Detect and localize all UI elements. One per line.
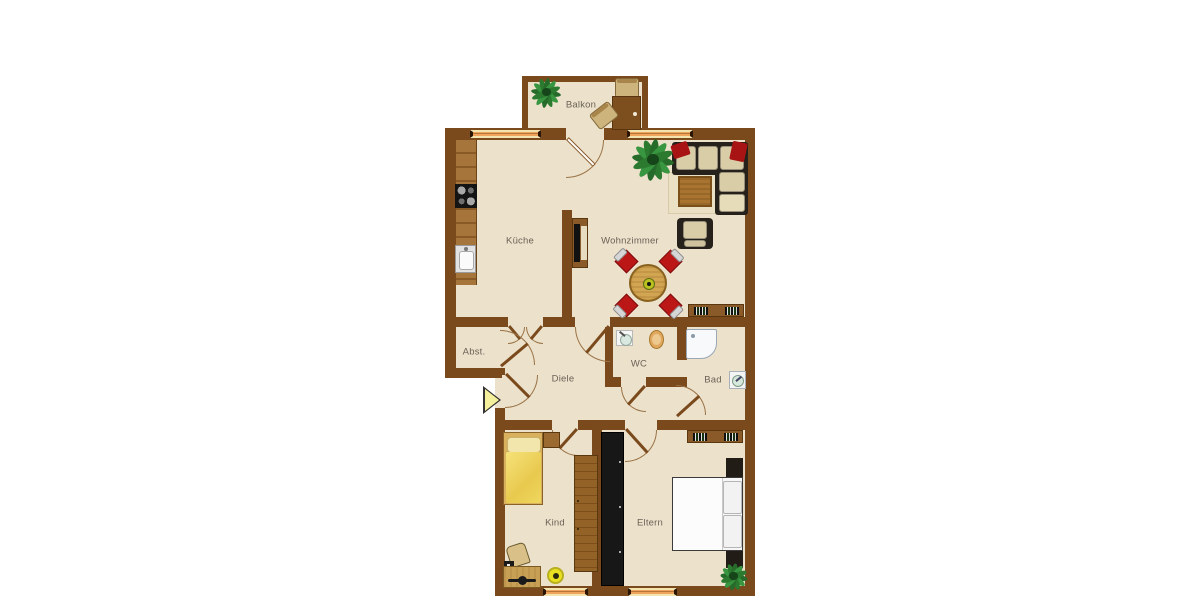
- plant: [720, 564, 747, 589]
- wall-segment: [445, 317, 508, 327]
- wall-segment: [657, 420, 755, 430]
- kind-blanket: [506, 452, 541, 503]
- room-label-balkon: Balkon: [566, 100, 596, 111]
- wall-segment: [445, 368, 502, 378]
- tv-lowboard: [572, 218, 588, 268]
- double-bed: [672, 477, 743, 551]
- eltern-wardrobe: [601, 432, 624, 586]
- table-centerpiece: [643, 278, 655, 290]
- kind-wardrobe: [574, 455, 598, 572]
- washing-machine: [729, 371, 746, 389]
- kind-bed: [503, 432, 543, 505]
- wall-segment: [495, 420, 552, 430]
- hand-basin: [616, 330, 633, 346]
- room-label-kind: Kind: [545, 518, 565, 529]
- toilet: [649, 330, 664, 349]
- wall-segment: [642, 76, 648, 133]
- sink-faucet: [464, 247, 468, 251]
- floorplan: Balkon Küche Wohnzimmer Abst. Diele WC B…: [0, 0, 1200, 600]
- wall-segment: [495, 368, 505, 375]
- desk-chair: [508, 573, 536, 589]
- room-label-wc: WC: [631, 359, 647, 370]
- wall-segment: [578, 420, 625, 430]
- balcony-chair: [615, 78, 639, 98]
- duvet: [673, 478, 723, 550]
- dining-table: [629, 264, 667, 302]
- bed-pillow: [723, 481, 742, 514]
- stool: [547, 567, 564, 584]
- nightstand: [543, 432, 560, 448]
- bed-pillow: [723, 515, 742, 548]
- wall-segment: [610, 317, 755, 327]
- window: [470, 130, 541, 138]
- room-label-eltern: Eltern: [637, 518, 663, 529]
- plant: [531, 79, 561, 106]
- window: [627, 130, 693, 138]
- room-label-abst: Abst.: [463, 347, 486, 358]
- sink-basin: [459, 251, 474, 270]
- tv-panel: [581, 226, 587, 260]
- kind-pillow: [507, 437, 541, 453]
- room-label-wohnzimmer: Wohnzimmer: [601, 236, 659, 247]
- wall-segment: [522, 76, 528, 133]
- coffee-table: [678, 176, 712, 207]
- window: [628, 588, 677, 596]
- plant: [632, 141, 674, 179]
- armchair: [677, 218, 713, 249]
- kitchen-sink: [455, 245, 476, 273]
- room-label-diele: Diele: [552, 374, 575, 385]
- room-label-bad: Bad: [704, 375, 722, 386]
- sideboard-books: [688, 304, 744, 317]
- tv-screen: [574, 224, 580, 262]
- wall-segment: [562, 210, 572, 327]
- wall-segment: [605, 377, 621, 387]
- sideboard-books: [687, 430, 743, 443]
- stove: [455, 184, 477, 208]
- room-label-kueche: Küche: [506, 236, 534, 247]
- window: [543, 588, 588, 596]
